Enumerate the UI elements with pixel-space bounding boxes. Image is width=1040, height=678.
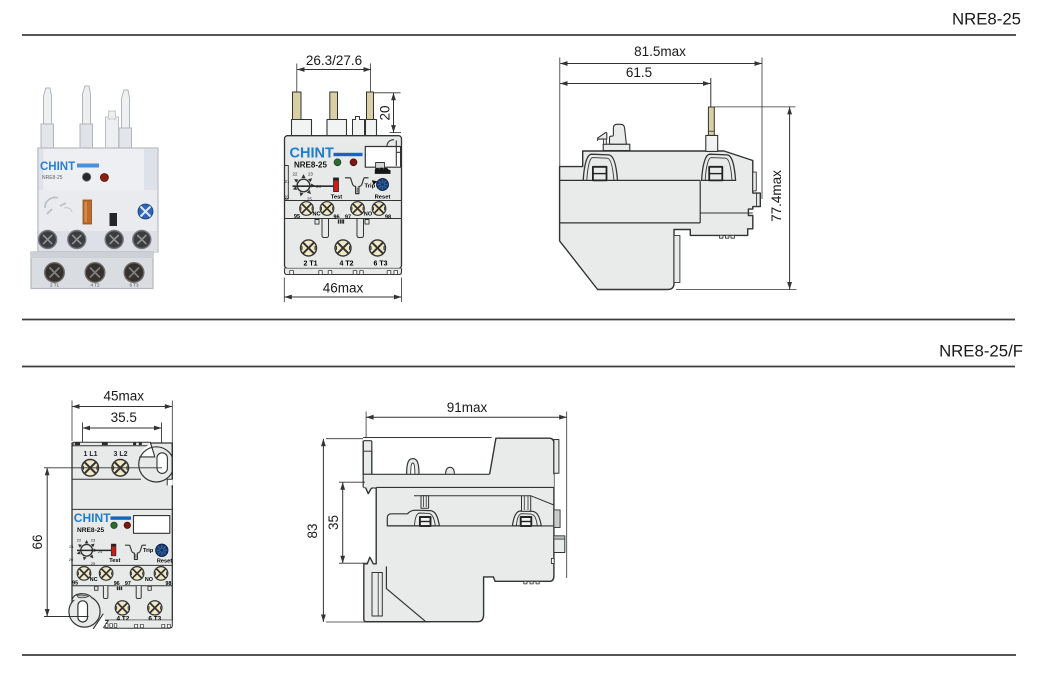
svg-text:91max: 91max [447, 400, 488, 415]
svg-text:66: 66 [30, 534, 45, 549]
svg-text:4 T2: 4 T2 [91, 283, 100, 288]
svg-text:6 T3: 6 T3 [373, 261, 387, 268]
svg-text:95: 95 [294, 214, 300, 220]
svg-text:NRE8-25/F: NRE8-25/F [939, 342, 1023, 361]
svg-text:CHINT: CHINT [40, 161, 75, 173]
svg-text:35: 35 [326, 515, 341, 530]
svg-text:Reset: Reset [157, 559, 172, 565]
svg-text:NRE8-25: NRE8-25 [294, 161, 327, 170]
svg-text:26.3/27.6: 26.3/27.6 [306, 53, 362, 68]
svg-text:83: 83 [305, 523, 320, 538]
svg-text:1 L1: 1 L1 [83, 451, 97, 458]
svg-text:23: 23 [91, 538, 96, 543]
svg-text:22: 22 [77, 538, 82, 543]
svg-text:NC: NC [312, 212, 320, 218]
svg-text:NC: NC [90, 577, 98, 583]
svg-text:45max: 45max [104, 389, 145, 404]
svg-text:CHINT: CHINT [74, 511, 111, 525]
svg-text:2 T1: 2 T1 [303, 261, 317, 268]
svg-text:NO: NO [145, 577, 153, 583]
svg-text:NRE8-25: NRE8-25 [42, 175, 63, 181]
svg-text:81.5max: 81.5max [634, 44, 686, 59]
svg-text:21: 21 [69, 544, 74, 549]
svg-text:Trip: Trip [365, 184, 376, 190]
svg-text:6 T3: 6 T3 [130, 283, 139, 288]
svg-text:77.4max: 77.4max [769, 170, 784, 222]
svg-text:20: 20 [69, 557, 74, 562]
svg-text:NO: NO [364, 212, 373, 218]
svg-text:35.5: 35.5 [111, 410, 137, 425]
svg-text:Test: Test [331, 195, 343, 201]
svg-text:Test: Test [109, 558, 120, 564]
svg-text:46max: 46max [323, 281, 364, 296]
svg-text:61.5: 61.5 [626, 65, 652, 80]
svg-text:97: 97 [345, 215, 351, 221]
svg-text:NRE8-25: NRE8-25 [77, 527, 104, 534]
svg-text:Reset: Reset [375, 195, 391, 201]
svg-text:25: 25 [307, 197, 312, 202]
svg-text:3 L2: 3 L2 [113, 451, 127, 458]
svg-text:20: 20 [378, 105, 393, 120]
svg-text:20: 20 [284, 195, 289, 200]
svg-text:21: 21 [285, 179, 290, 184]
svg-text:NRE8-25: NRE8-25 [952, 10, 1021, 29]
svg-text:23: 23 [308, 172, 313, 177]
svg-text:98: 98 [385, 215, 391, 221]
svg-text:4 T2: 4 T2 [339, 261, 353, 268]
svg-text:22: 22 [293, 172, 298, 177]
svg-text:CHINT: CHINT [290, 146, 334, 162]
svg-text:2 T1: 2 T1 [50, 283, 59, 288]
svg-text:Trip: Trip [143, 548, 154, 554]
